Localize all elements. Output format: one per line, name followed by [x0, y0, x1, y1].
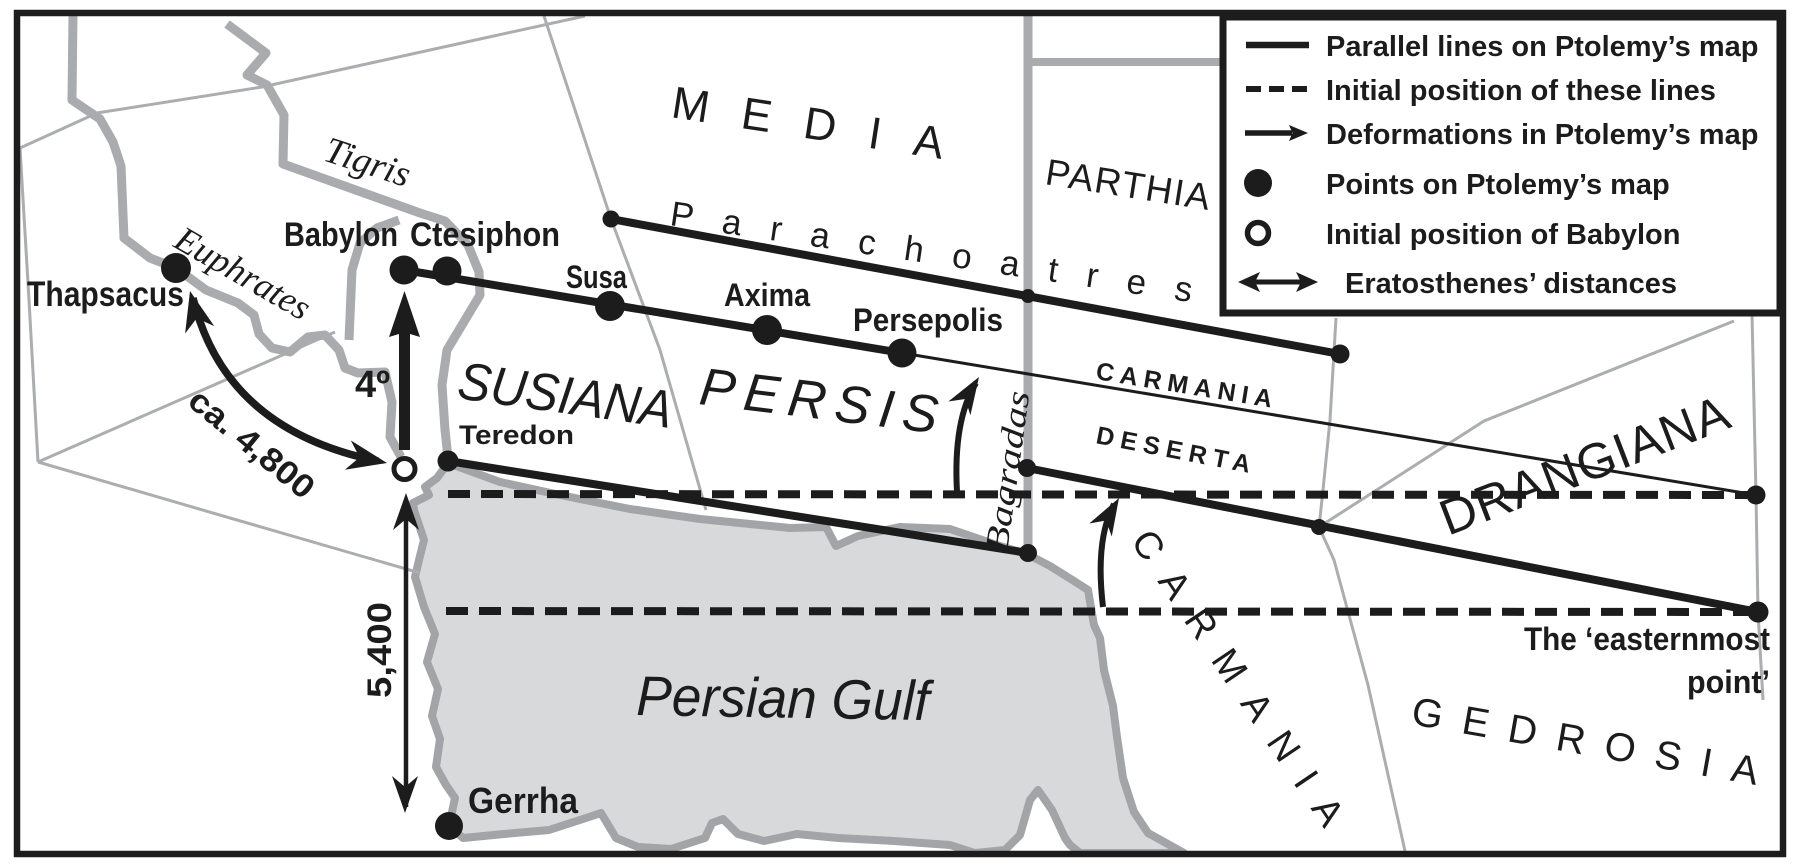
svg-text:Teredon: Teredon [459, 420, 574, 450]
svg-text:Babylon: Babylon [284, 216, 398, 254]
svg-text:4º: 4º [355, 364, 390, 406]
svg-text:Ctesiphon: Ctesiphon [410, 216, 560, 254]
svg-text:Initial position of these line: Initial position of these lines [1326, 75, 1716, 107]
svg-text:point’: point’ [1687, 664, 1770, 700]
svg-text:Persian Gulf: Persian Gulf [636, 664, 935, 732]
svg-text:Initial position of Babylon: Initial position of Babylon [1326, 219, 1680, 251]
svg-text:Persepolis: Persepolis [853, 302, 1003, 338]
svg-text:Deformations in Ptolemy’s map: Deformations in Ptolemy’s map [1326, 119, 1758, 151]
svg-text:The ‘easternmost: The ‘easternmost [1524, 621, 1770, 657]
svg-text:Thapsacus: Thapsacus [27, 275, 184, 314]
svg-text:Gerrha: Gerrha [468, 780, 579, 821]
svg-text:Points on Ptolemy’s map: Points on Ptolemy’s map [1326, 169, 1670, 201]
svg-text:Susa: Susa [566, 259, 627, 295]
svg-text:Eratosthenes’ distances: Eratosthenes’ distances [1345, 268, 1677, 300]
svg-text:Parallel lines on Ptolemy’s ma: Parallel lines on Ptolemy’s map [1326, 31, 1758, 63]
svg-text:5,400: 5,400 [361, 602, 399, 698]
svg-text:Axima: Axima [724, 277, 810, 313]
